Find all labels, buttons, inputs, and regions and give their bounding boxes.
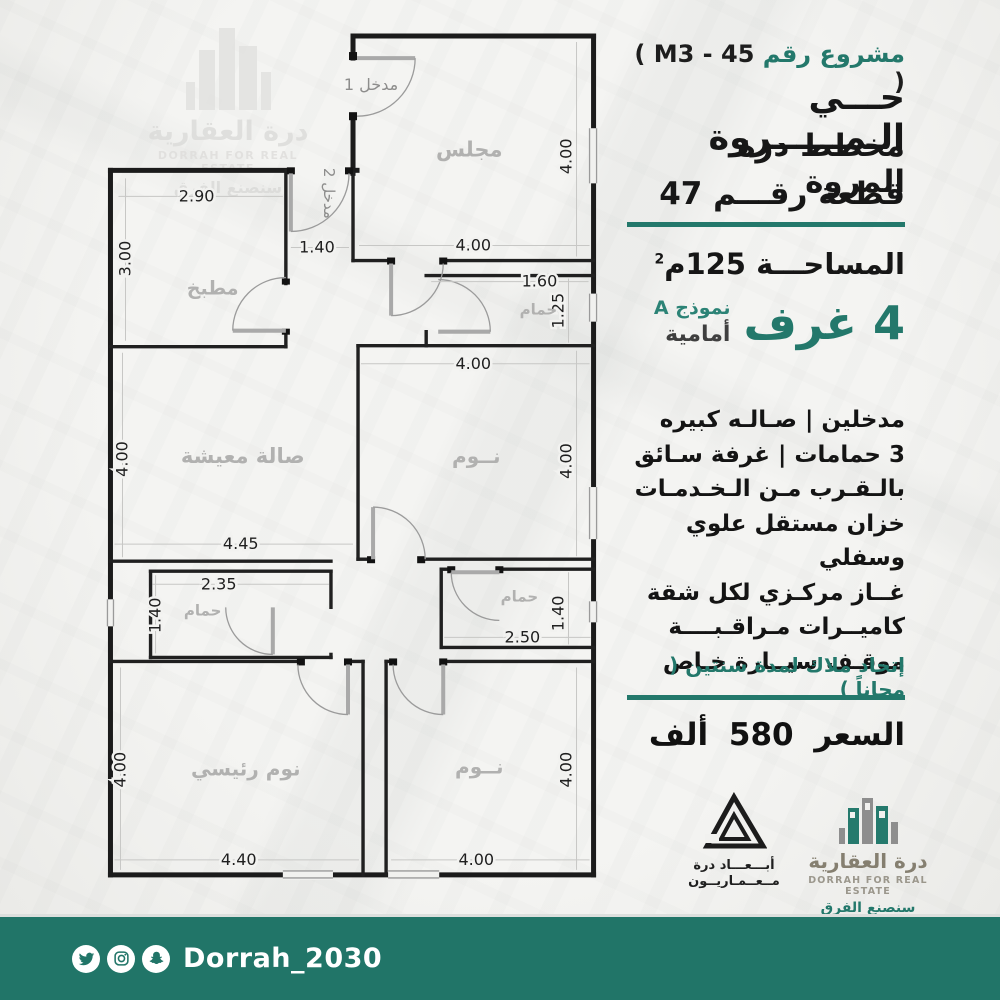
rooms-model-row: 4 غرف نموذج A أمامية [627,297,905,348]
snapchat-icon[interactable] [142,945,170,973]
dimension-label: 4.00 [557,443,576,479]
plan-label: حمام [501,587,539,605]
dimension-label: 1.40 [299,238,335,257]
plan-label: صالة معيشة [181,443,305,468]
instagram-icon[interactable] [107,945,135,973]
room-labels: مجلسمطبخحمامصالة معيشةنــومحمامحمامنوم ر… [181,75,557,782]
info-panel: مشروع رقم ( M3 - 45 ) حـــي الـمــــــرو… [627,0,905,915]
feature-item: خزان مستقل علوي وسفلي [627,507,905,576]
area-superscript: 2 [654,251,664,267]
plan-label: مجلس [436,136,503,161]
floor-plan: 2.903.001.404.004.001.601.254.004.004.00… [90,28,602,910]
plan-label: مطبخ [187,278,239,300]
feature-item: بالـقـرب مـن الـخـدمـات [627,472,905,507]
teal-divider-bottom [627,695,905,700]
social-bar: Dorrah_2030 [0,914,1000,1000]
plan-label: نــوم [452,444,500,468]
dimension-labels: 2.903.001.404.004.001.601.254.004.004.00… [110,138,575,868]
features-list: مدخلين | صـالـه كبيره 3 حمامات | غرفة سـ… [627,403,905,679]
dorrah-logo: درة العقارية DORRAH FOR REAL ESTATE سنصن… [798,792,938,916]
dimension-label: 2.90 [179,186,215,205]
area-label: المساحـــة 125م [664,247,905,281]
dorrah-name-ar: درة العقارية [798,849,938,873]
abaad-name-line2: مــعــمـاريــون [686,874,782,889]
plan-label: حمام [520,301,558,319]
social-icons [72,945,170,973]
plan-label: نوم رئيسي [191,757,301,782]
plan-label: نــوم [455,755,503,779]
feature-item: غــاز مركـزي لكل شقة [627,576,905,611]
abaad-triangle-icon [701,792,767,850]
dimension-label: 1.40 [146,597,165,633]
price-line: السعر 580 ألف [627,717,905,753]
dimension-label: 4.00 [113,441,132,477]
dorrah-buildings-icon [798,792,938,844]
abaad-architects-logo: أبـــعـــاد درة مــعــمـاريــون [686,792,782,889]
plan-label: مدخل 1 [344,75,398,94]
social-handle: Dorrah_2030 [183,943,382,974]
abaad-name-line1: أبـــعـــاد درة [686,858,782,873]
feature-item: 3 حمامات | غرفة سـائق [627,438,905,473]
dimension-label: 4.00 [557,752,576,788]
feature-item: مدخلين | صـالـه كبيره [627,403,905,438]
dimension-label: 4.00 [458,850,494,869]
feature-item: كاميــرات مـراقـبــــة [627,610,905,645]
dimension-label: 3.00 [116,241,135,277]
model-side: أمامية [654,321,731,349]
dimension-label: 2.50 [505,627,541,646]
owners-union-note: إتحاد ملاك لمدة سنتين ( مجاناً ) [627,653,905,701]
dimension-label: 2.35 [201,574,237,593]
plot-number: قطعة رقـــم 47 [627,176,905,212]
area-line: المساحـــة 125م2 [627,247,905,281]
dimension-label: 4.00 [557,138,576,174]
dimension-label: 1.40 [548,595,567,631]
project-label: مشروع رقم [763,40,905,68]
plan-label: مدخل 2 [320,168,338,219]
plan-label: حمام [184,601,222,619]
dimension-label: 4.00 [455,236,491,255]
twitter-icon[interactable] [72,945,100,973]
poster: درة العقارية DORRAH FOR REAL ESTATE سنصن… [0,0,1000,1000]
dimension-label: 4.45 [223,534,259,553]
model-label: نموذج A [654,297,731,321]
dimension-label: 4.00 [455,354,491,373]
rooms-count: 4 غرف [743,300,905,346]
dimension-label: 4.40 [221,850,257,869]
dimension-label: 1.60 [522,272,558,291]
teal-divider-top [627,222,905,227]
dorrah-name-en: DORRAH FOR REAL ESTATE [798,875,938,897]
dimension-label: 4.00 [110,752,129,788]
